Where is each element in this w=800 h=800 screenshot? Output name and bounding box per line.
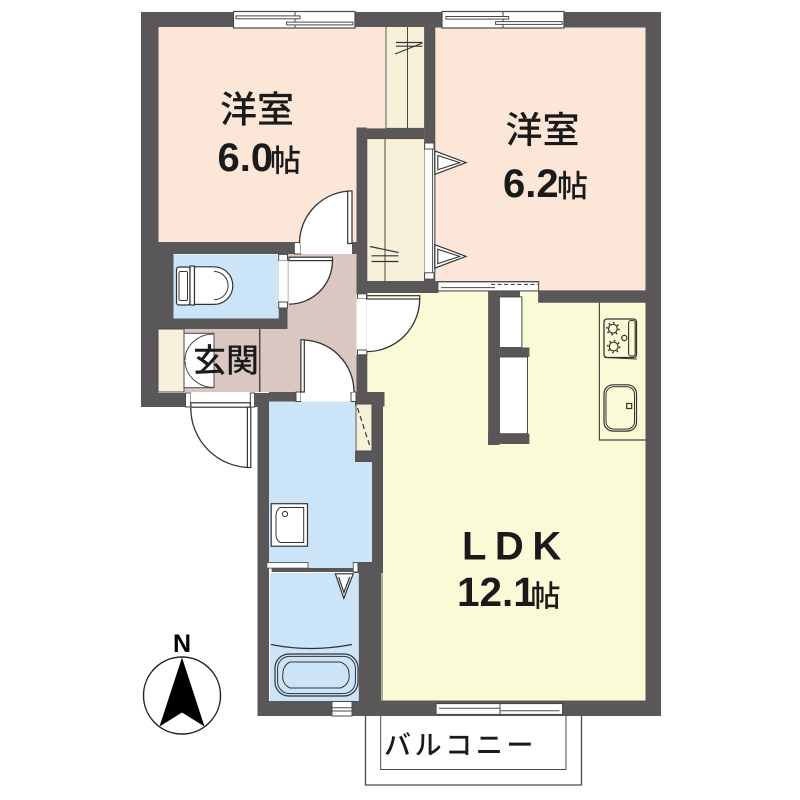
svg-text:6.2: 6.2 — [503, 162, 559, 206]
svg-text:N: N — [173, 630, 191, 658]
svg-text:LDK: LDK — [462, 525, 570, 569]
svg-text:12.1: 12.1 — [457, 569, 536, 615]
svg-text:6.0: 6.0 — [218, 136, 274, 180]
